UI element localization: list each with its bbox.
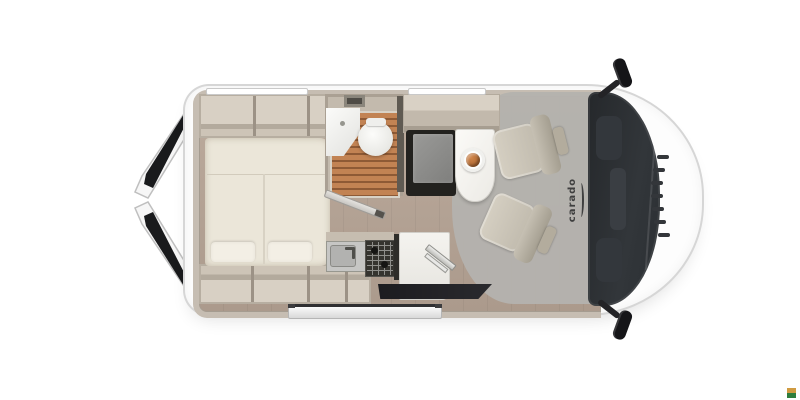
bathroom-vent: [344, 95, 365, 107]
floorplan-scene: carado: [0, 0, 800, 400]
bed-split-line: [263, 174, 265, 264]
sink-drain-icon: [340, 121, 345, 126]
burner-icon: [371, 247, 378, 254]
stove-grate: [367, 242, 393, 275]
pillow-right: [268, 242, 312, 262]
burner-icon: [381, 261, 388, 268]
food-icon: [466, 153, 480, 167]
toilet-lid: [366, 118, 386, 126]
carado-logo: carado: [568, 172, 584, 228]
entry-step: [288, 304, 442, 319]
dinette-overhead-shelf: [403, 94, 500, 133]
bench-cushion: [413, 134, 453, 183]
left-mirror-icon: [592, 56, 640, 102]
wall-window-slot: [408, 88, 486, 95]
dashboard-silhouette: [596, 116, 622, 160]
overhead-cabinets-top: [199, 94, 329, 138]
right-mirror-icon: [592, 296, 640, 342]
bed-section-line: [207, 174, 328, 175]
sliding-door-opening: [378, 284, 492, 299]
pillow-left: [211, 242, 255, 262]
front-grille-icon: [651, 155, 671, 251]
carado-logo-swoosh-icon: [578, 183, 584, 217]
dinette-bench: [406, 130, 456, 196]
carado-logo-text: carado: [568, 178, 578, 222]
dashboard-silhouette: [610, 168, 626, 230]
wall-window-slot: [206, 88, 308, 95]
mirror-arm: [597, 79, 621, 100]
rear-bed: [205, 138, 330, 266]
dashboard-silhouette: [596, 238, 622, 282]
watermark-bottom-half: [787, 393, 796, 398]
faucet-icon: [352, 247, 355, 259]
toilet: [358, 121, 393, 156]
corner-watermark-icon: [787, 388, 796, 398]
